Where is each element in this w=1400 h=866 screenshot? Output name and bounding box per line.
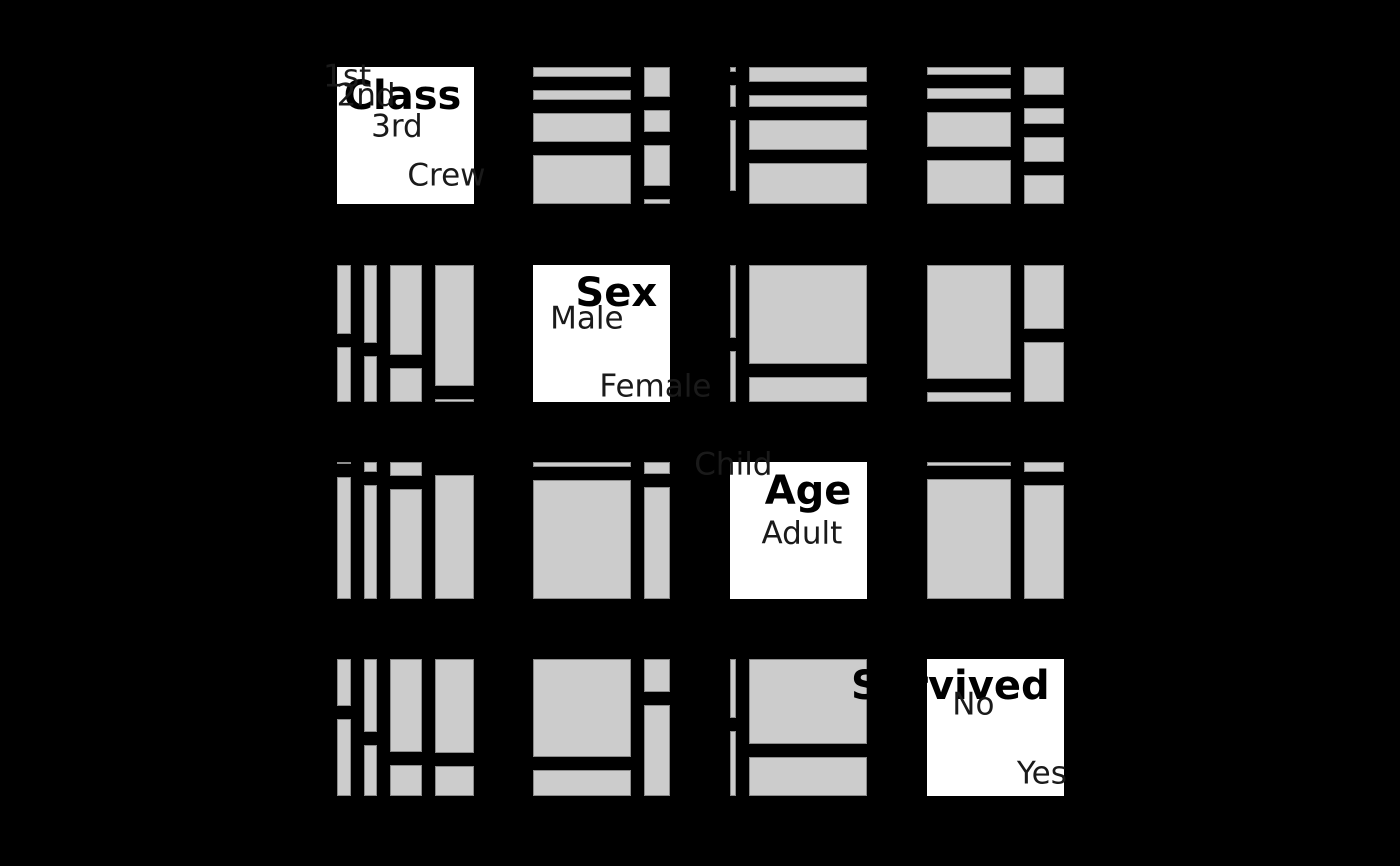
tile-child-female <box>730 351 736 402</box>
tile-adult-female <box>749 377 867 402</box>
category-label-child: Child <box>694 450 772 481</box>
tile-child-3rd <box>730 120 736 191</box>
tile-adult-3rd <box>749 120 867 149</box>
tile-male-2nd <box>533 90 631 100</box>
tile-female-no <box>644 659 670 692</box>
mosaic-panel-sex-vs-survived <box>927 265 1064 402</box>
tile-2nd-yes <box>364 745 377 796</box>
tile-male-no <box>533 659 631 757</box>
tile-adult-2nd <box>749 95 867 107</box>
tile-child-yes <box>730 731 736 796</box>
tile-no-female <box>927 392 1011 402</box>
tile-1st-male <box>337 265 351 334</box>
tile-yes-female <box>1024 342 1064 402</box>
tile-male-3rd <box>533 113 631 142</box>
diag-panel-sex: SexMaleFemale <box>533 265 670 402</box>
tile-adult-male <box>749 265 867 364</box>
tile-3rd-female <box>390 368 421 402</box>
mosaic-pairs-plot: Class1st2nd3rdCrewSexMaleFemaleAgeChildA… <box>0 0 1400 866</box>
mosaic-panel-survived-vs-sex <box>533 659 670 796</box>
diag-panel-class: Class1st2nd3rdCrew <box>337 67 474 204</box>
category-label-no: No <box>952 690 994 721</box>
tile-male-1st <box>533 67 631 77</box>
tile-female-yes <box>644 705 670 796</box>
mosaic-panel-survived-vs-age <box>730 659 867 796</box>
mosaic-panel-class-vs-survived <box>927 67 1064 204</box>
category-label-2nd: 2nd <box>337 81 396 112</box>
tile-crew-male <box>435 265 474 386</box>
tile-female-child <box>644 462 670 474</box>
tile-2nd-female <box>364 356 377 402</box>
tile-crew-adult <box>435 475 474 599</box>
tile-crew-yes <box>435 766 474 796</box>
tile-1st-child <box>337 462 351 464</box>
tile-2nd-male <box>364 265 377 343</box>
tile-adult-yes <box>749 757 867 796</box>
variable-title-age: Age <box>765 471 852 511</box>
tile-3rd-child <box>390 462 421 476</box>
tile-adult-1st <box>749 67 867 82</box>
tile-1st-no <box>337 659 351 706</box>
tile-female-3rd <box>644 145 670 186</box>
tile-child-1st <box>730 67 736 72</box>
tile-female-crew <box>644 199 670 204</box>
tile-male-yes <box>533 770 631 796</box>
tile-female-1st <box>644 67 670 97</box>
tile-no-2nd <box>927 88 1011 99</box>
tile-yes-2nd <box>1024 108 1064 124</box>
tile-yes-male <box>1024 265 1064 329</box>
tile-child-2nd <box>730 85 736 107</box>
diag-panel-age: AgeChildAdult <box>730 462 867 599</box>
tile-1st-adult <box>337 477 351 599</box>
tile-no-child <box>927 462 1011 466</box>
category-label-crew: Crew <box>407 161 485 192</box>
category-label-adult: Adult <box>762 518 843 549</box>
tile-yes-1st <box>1024 67 1064 95</box>
tile-female-2nd <box>644 110 670 132</box>
category-label-male: Male <box>550 303 623 334</box>
tile-crew-no <box>435 659 474 753</box>
tile-3rd-male <box>390 265 421 355</box>
mosaic-panel-age-vs-survived <box>927 462 1064 599</box>
diag-panel-survived: SurvivedNoYes <box>927 659 1064 796</box>
mosaic-panel-class-vs-age <box>730 67 867 204</box>
tile-1st-female <box>337 347 351 402</box>
tile-female-adult <box>644 487 670 599</box>
tile-male-crew <box>533 155 631 204</box>
variable-title-survived: Survived <box>851 666 1050 706</box>
mosaic-panel-age-vs-class <box>337 462 474 599</box>
category-label-yes: Yes <box>1017 758 1067 789</box>
mosaic-panel-age-vs-sex <box>533 462 670 599</box>
tile-yes-child <box>1024 462 1064 472</box>
tile-no-male <box>927 265 1011 379</box>
tile-3rd-adult <box>390 489 421 599</box>
tile-no-adult <box>927 479 1011 599</box>
tile-1st-yes <box>337 719 351 796</box>
mosaic-panel-sex-vs-class <box>337 265 474 402</box>
tile-child-male <box>730 265 736 338</box>
tile-yes-adult <box>1024 485 1064 599</box>
tile-adult-crew <box>749 163 867 204</box>
tile-no-3rd <box>927 112 1011 147</box>
tile-child-no <box>730 659 736 718</box>
tile-male-adult <box>533 480 631 599</box>
mosaic-panel-class-vs-sex <box>533 67 670 204</box>
tile-3rd-no <box>390 659 421 752</box>
mosaic-panel-survived-vs-class <box>337 659 474 796</box>
tile-2nd-adult <box>364 485 377 599</box>
mosaic-panel-sex-vs-age <box>730 265 867 402</box>
tile-2nd-no <box>364 659 377 732</box>
tile-yes-crew <box>1024 175 1064 204</box>
category-label-3rd: 3rd <box>371 111 423 142</box>
tile-yes-3rd <box>1024 137 1064 162</box>
tile-adult-no <box>749 659 867 744</box>
tile-male-child <box>533 462 631 467</box>
tile-3rd-yes <box>390 765 421 796</box>
tile-2nd-child <box>364 462 377 472</box>
category-label-female: Female <box>599 372 711 403</box>
tile-no-crew <box>927 160 1011 204</box>
tile-crew-female <box>435 399 474 402</box>
tile-no-1st <box>927 67 1011 75</box>
